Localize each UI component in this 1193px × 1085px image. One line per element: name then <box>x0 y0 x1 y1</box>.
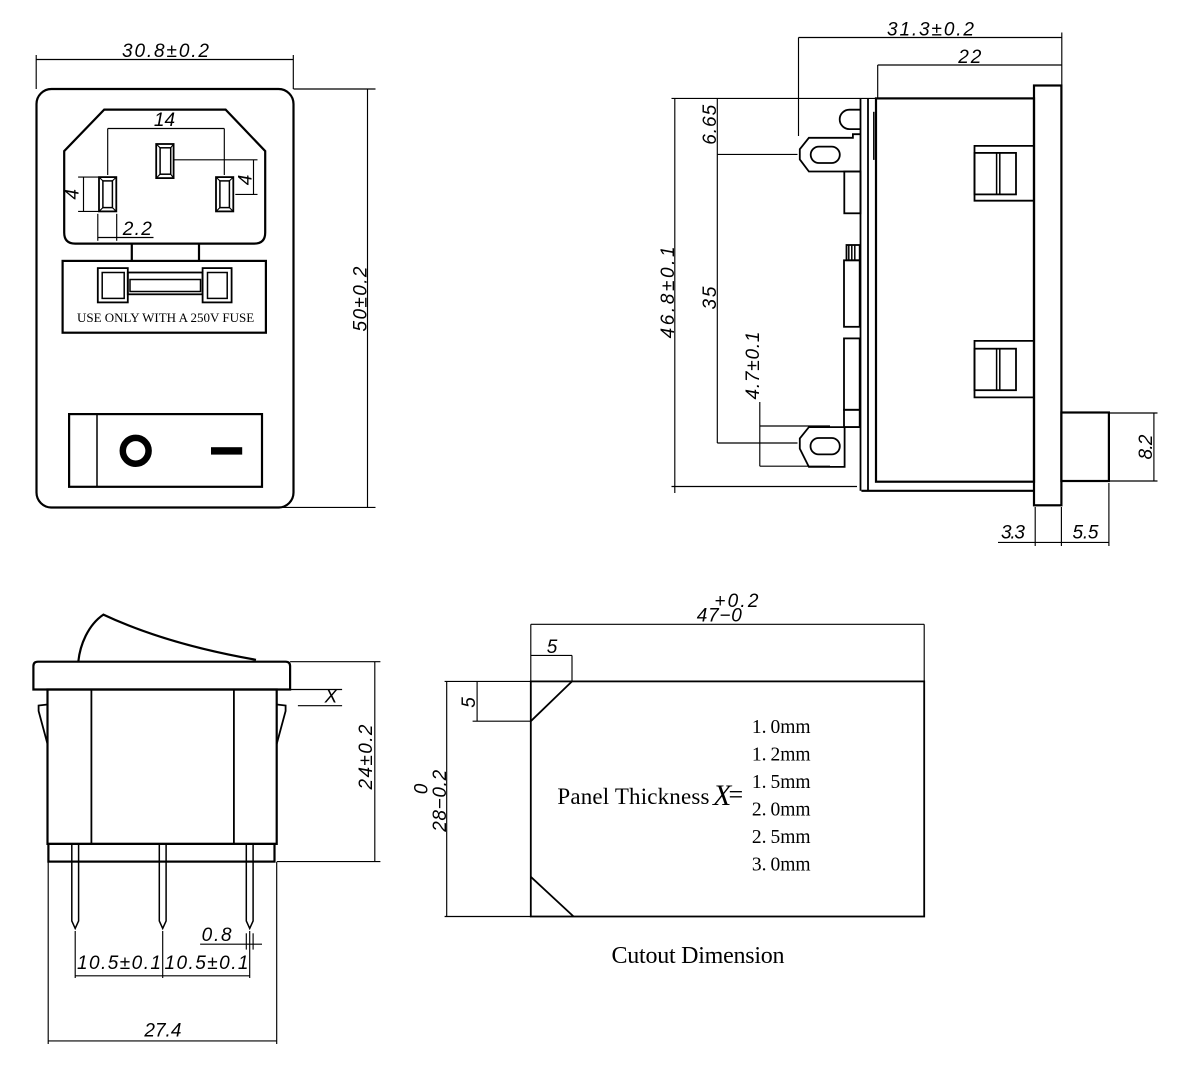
svg-text:10.5±0.1: 10.5±0.1 <box>165 953 249 974</box>
svg-text:0mm: 0mm <box>771 800 811 821</box>
svg-text:=: = <box>729 780 744 809</box>
svg-text:USE ONLY WITH A 250V FUSE: USE ONLY WITH A 250V FUSE <box>77 310 254 325</box>
svg-text:24±0.2: 24±0.2 <box>356 724 377 790</box>
svg-text:X: X <box>324 687 339 708</box>
svg-text:28−0.2: 28−0.2 <box>430 769 451 832</box>
svg-text:27.4: 27.4 <box>143 1021 181 1042</box>
svg-text:6.65: 6.65 <box>700 104 721 144</box>
svg-text:3.: 3. <box>752 855 767 876</box>
svg-text:2mm: 2mm <box>771 745 811 766</box>
svg-text:14: 14 <box>154 110 175 131</box>
svg-text:5: 5 <box>459 697 480 708</box>
svg-text:0mm: 0mm <box>771 717 811 738</box>
svg-text:31.3±0.2: 31.3±0.2 <box>887 20 974 41</box>
svg-text:5mm: 5mm <box>771 772 811 793</box>
svg-text:5.5: 5.5 <box>1073 523 1099 544</box>
svg-text:0mm: 0mm <box>771 855 811 876</box>
svg-text:Panel Thickness: Panel Thickness <box>557 784 709 809</box>
svg-text:1.: 1. <box>752 745 767 766</box>
svg-text:30.8±0.2: 30.8±0.2 <box>122 41 209 62</box>
svg-text:0: 0 <box>412 783 433 794</box>
svg-text:10.5±0.1: 10.5±0.1 <box>77 953 161 974</box>
svg-text:1.: 1. <box>752 717 767 738</box>
svg-text:2.2: 2.2 <box>122 219 152 240</box>
svg-text:4.7±0.1: 4.7±0.1 <box>743 332 764 400</box>
svg-text:5mm: 5mm <box>771 827 811 848</box>
svg-text:3.3: 3.3 <box>1001 523 1025 544</box>
svg-text:8.2: 8.2 <box>1136 434 1157 459</box>
svg-text:+0.2: +0.2 <box>714 591 758 612</box>
svg-text:35: 35 <box>700 286 721 309</box>
svg-text:Cutout Dimension: Cutout Dimension <box>612 943 785 969</box>
svg-text:50±0.2: 50±0.2 <box>351 266 372 331</box>
svg-text:5: 5 <box>547 637 558 658</box>
svg-text:2.: 2. <box>752 800 767 821</box>
svg-text:4: 4 <box>63 189 84 200</box>
svg-text:1.: 1. <box>752 772 767 793</box>
svg-text:2.: 2. <box>752 827 767 848</box>
svg-text:4: 4 <box>236 175 257 186</box>
svg-text:0.8: 0.8 <box>202 925 232 946</box>
